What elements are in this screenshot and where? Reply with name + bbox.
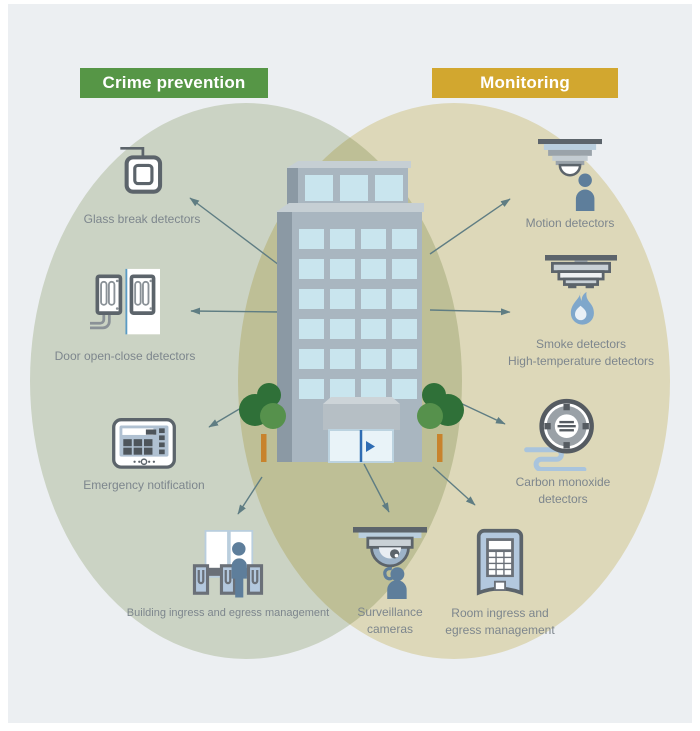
turnstile-pillars <box>193 564 263 595</box>
item-label: Glass break detectors <box>42 211 242 228</box>
flame-icon <box>571 292 594 325</box>
item-label: Motion detectors <box>470 215 670 232</box>
label-line-1: Room ingress and <box>430 605 570 622</box>
keypad-access-panel-icon <box>475 528 525 600</box>
smoke-detector-icon <box>545 255 617 331</box>
penthouse-windows <box>305 175 403 201</box>
turnstile-gate-icon <box>192 530 264 598</box>
label-line-1: Smoke detectors <box>481 336 681 353</box>
building-illustration <box>235 140 470 465</box>
item-emergency-notification: Emergency notification <box>44 418 244 494</box>
item-label: Emergency notification <box>44 477 244 494</box>
banner-crime-prevention: Crime prevention <box>80 68 268 98</box>
item-glass-break-detectors: Glass break detectors <box>42 142 242 228</box>
item-door-open-close-detectors: Door open-close detectors <box>25 268 225 365</box>
item-label: Door open-close detectors <box>25 348 225 365</box>
item-building-ingress-egress: Building ingress and egress management <box>123 530 333 622</box>
person-figure <box>576 174 595 212</box>
item-label: Room ingress and egress management <box>430 605 570 639</box>
carbon-monoxide-detector-icon <box>523 398 603 471</box>
label-line-2: egress management <box>430 622 570 639</box>
label-line-2: High-temperature detectors <box>481 353 681 370</box>
smoke-swirl <box>527 450 584 470</box>
right-tree <box>417 383 464 462</box>
label-line-2: detectors <box>463 491 663 508</box>
item-carbon-monoxide-detectors: Carbon monoxide detectors <box>463 398 663 508</box>
item-label: Smoke detectors High-temperature detecto… <box>481 336 681 370</box>
entrance-canopy <box>323 397 400 404</box>
banner-monitoring: Monitoring <box>432 68 618 98</box>
emergency-notification-panel-icon <box>112 418 176 469</box>
item-label: Building ingress and egress management <box>123 605 333 622</box>
glass-break-detector-icon <box>114 142 170 203</box>
label-line-1: Carbon monoxide <box>463 474 663 491</box>
item-label: Carbon monoxide detectors <box>463 474 663 508</box>
arrow-to-surveillance-cameras <box>364 464 389 512</box>
door-open-close-detector-icon <box>90 268 160 336</box>
surveillance-camera-icon <box>353 527 427 599</box>
person-figure <box>385 567 407 599</box>
item-room-ingress-egress: Room ingress and egress management <box>430 528 570 639</box>
item-motion-detectors: Motion detectors <box>470 139 670 232</box>
motion-detector-icon <box>538 139 602 211</box>
item-smoke-detectors: Smoke detectors High-temperature detecto… <box>481 255 681 370</box>
security-system-diagram: Crime prevention Monitoring Glass break … <box>0 0 700 731</box>
